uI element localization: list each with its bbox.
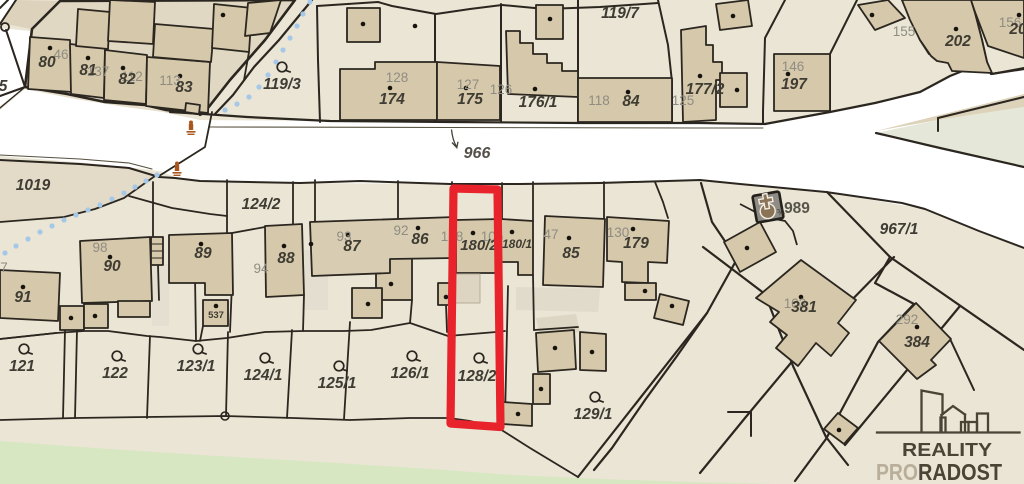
- svg-text:179: 179: [623, 235, 649, 252]
- svg-text:146: 146: [782, 59, 805, 74]
- svg-text:177/2: 177/2: [686, 81, 725, 98]
- svg-text:82: 82: [118, 71, 136, 88]
- svg-text:537: 537: [208, 310, 224, 321]
- svg-text:87: 87: [343, 238, 362, 255]
- svg-text:967/1: 967/1: [880, 221, 919, 238]
- svg-text:91: 91: [14, 289, 31, 306]
- svg-text:5: 5: [0, 78, 8, 95]
- svg-text:RADOST: RADOST: [918, 459, 1002, 484]
- svg-text:47: 47: [543, 227, 558, 242]
- svg-text:124/2: 124/2: [242, 196, 281, 213]
- svg-text:966: 966: [464, 145, 491, 162]
- svg-text:89: 89: [194, 245, 212, 262]
- svg-text:128/2: 128/2: [458, 368, 497, 385]
- svg-text:94: 94: [253, 261, 269, 276]
- svg-text:46: 46: [53, 47, 68, 62]
- svg-text:384: 384: [904, 334, 930, 351]
- svg-text:1019: 1019: [16, 177, 51, 194]
- svg-text:202: 202: [944, 33, 971, 50]
- svg-text:83: 83: [175, 79, 193, 96]
- svg-text:80: 80: [38, 54, 56, 71]
- svg-text:85: 85: [562, 245, 580, 262]
- svg-text:86: 86: [411, 231, 429, 248]
- svg-text:197: 197: [781, 76, 808, 93]
- svg-text:121: 121: [9, 358, 35, 375]
- svg-text:123/1: 123/1: [177, 358, 216, 375]
- svg-text:128: 128: [386, 70, 409, 85]
- svg-text:7: 7: [0, 260, 8, 275]
- svg-text:REALITY: REALITY: [902, 439, 993, 460]
- svg-text:175: 175: [457, 91, 483, 108]
- svg-text:180/1: 180/1: [502, 237, 532, 251]
- svg-text:119/3: 119/3: [263, 76, 301, 93]
- svg-text:119/7: 119/7: [601, 5, 640, 22]
- svg-text:126: 126: [490, 82, 513, 97]
- svg-text:176/1: 176/1: [519, 94, 558, 111]
- svg-text:92: 92: [393, 223, 408, 238]
- svg-text:20: 20: [1008, 21, 1024, 38]
- svg-text:98: 98: [92, 240, 107, 255]
- svg-text:127: 127: [457, 77, 480, 92]
- svg-text:118: 118: [588, 93, 610, 108]
- svg-text:129/1: 129/1: [574, 406, 613, 423]
- svg-text:PRO: PRO: [876, 459, 918, 484]
- svg-text:174: 174: [379, 91, 405, 108]
- svg-text:292: 292: [896, 312, 919, 327]
- svg-text:381: 381: [791, 299, 817, 316]
- svg-text:81: 81: [79, 62, 96, 79]
- svg-text:88: 88: [277, 250, 295, 267]
- svg-text:124/1: 124/1: [244, 367, 283, 384]
- svg-text:125/1: 125/1: [318, 375, 357, 392]
- svg-text:155: 155: [893, 24, 916, 39]
- svg-text:84: 84: [622, 93, 640, 110]
- svg-text:989: 989: [784, 200, 810, 217]
- svg-text:126/1: 126/1: [391, 365, 430, 382]
- svg-text:90: 90: [103, 258, 121, 275]
- svg-text:122: 122: [102, 365, 128, 382]
- svg-text:180/2: 180/2: [460, 237, 498, 254]
